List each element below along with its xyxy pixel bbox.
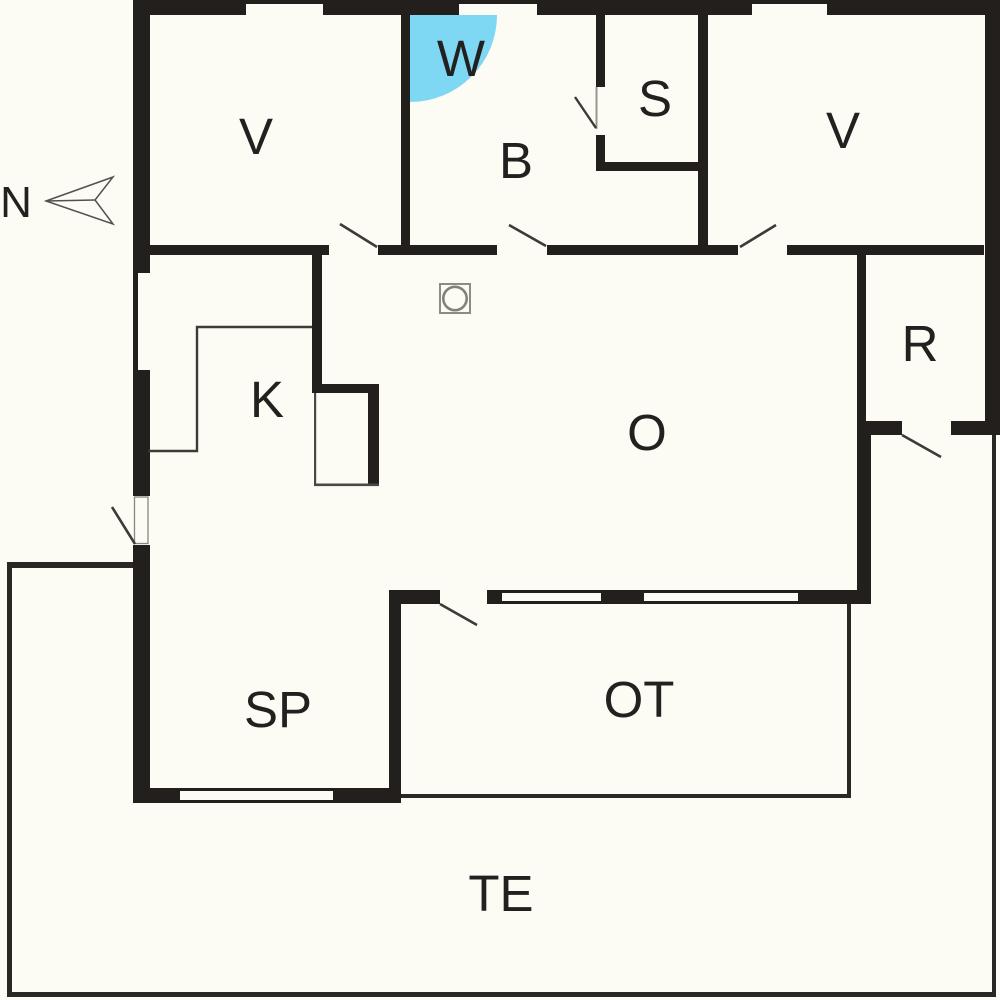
svg-text:O: O <box>627 404 667 461</box>
svg-text:OT: OT <box>604 671 675 728</box>
svg-text:R: R <box>902 315 939 372</box>
svg-text:N: N <box>0 178 32 227</box>
svg-text:S: S <box>638 70 672 127</box>
svg-text:TE: TE <box>468 865 533 922</box>
svg-text:V: V <box>826 102 860 159</box>
svg-text:SP: SP <box>244 681 312 738</box>
svg-text:V: V <box>239 108 273 165</box>
svg-text:B: B <box>499 132 533 189</box>
svg-text:W: W <box>437 30 485 87</box>
svg-text:K: K <box>250 371 284 428</box>
